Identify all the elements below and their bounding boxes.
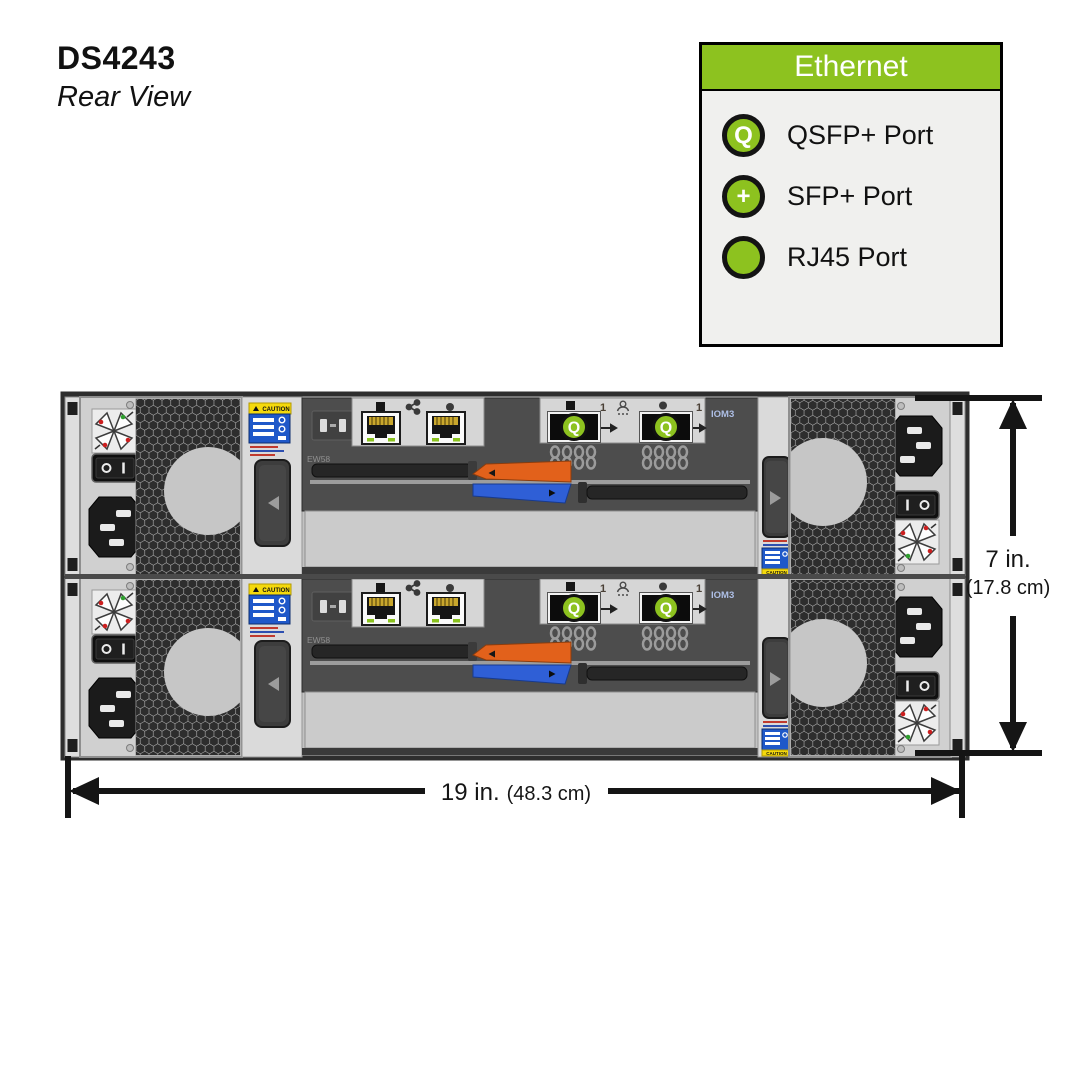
- rear-view-diagram: Q CAUTION: [0, 0, 1080, 1080]
- chassis: [63, 394, 967, 758]
- dimension-height-value: 7 in.: [985, 546, 1030, 573]
- dimension-width-label: 19 in.(48.3 cm): [441, 779, 591, 806]
- dimension-width: 19 in.(48.3 cm): [65, 756, 965, 818]
- dimension-height-metric: (17.8 cm): [966, 577, 1050, 599]
